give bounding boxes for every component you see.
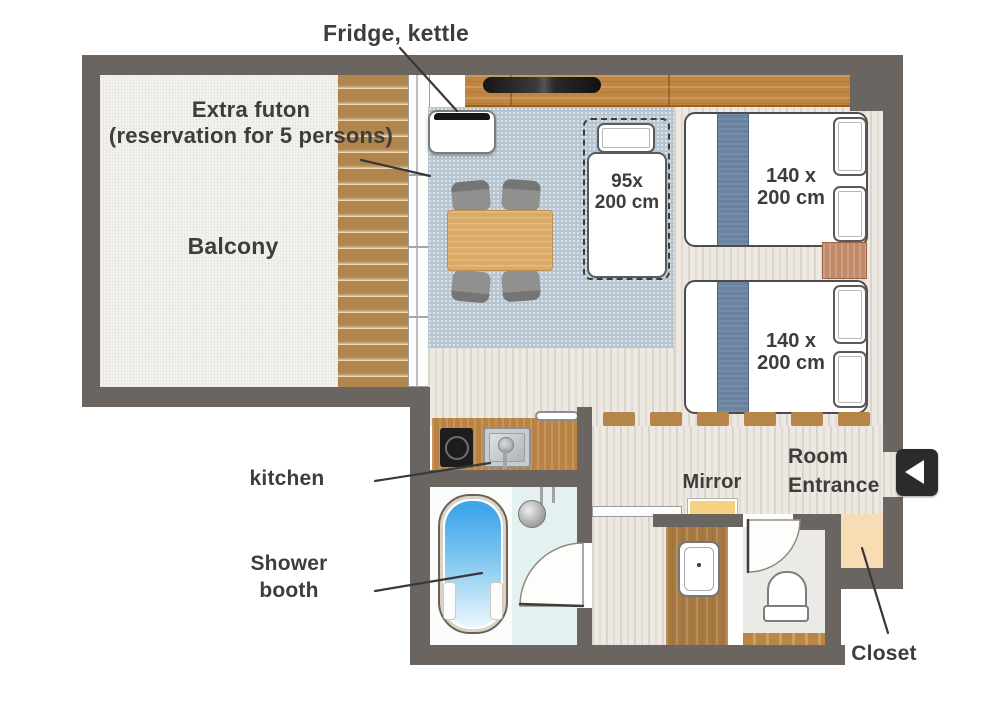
label-balcony: Balcony xyxy=(153,233,313,261)
bed-1-pillow xyxy=(833,117,867,176)
floor-slat xyxy=(603,412,635,426)
bathtub-step xyxy=(443,582,456,620)
wall-top xyxy=(82,55,903,75)
toilet-tank xyxy=(763,605,809,622)
floor-slat xyxy=(697,412,729,426)
label-shower-booth: Shower booth xyxy=(229,550,349,604)
label-room-entrance: Room Entrance xyxy=(788,442,898,500)
wall-bath-right-lower xyxy=(577,608,592,645)
chair xyxy=(501,269,541,303)
left-pointing-triangle xyxy=(905,460,924,484)
chair xyxy=(451,269,492,303)
counter-seam xyxy=(668,75,670,105)
tv xyxy=(483,77,601,93)
label-extra-futon: Extra futon (reservation for 5 persons) xyxy=(103,97,399,149)
dining-table xyxy=(447,210,553,271)
bed-2-runner xyxy=(717,282,749,412)
entrance-arrow-icon xyxy=(896,449,938,496)
window-divider xyxy=(409,246,429,248)
wall-balcony-bottom xyxy=(82,387,430,407)
chair xyxy=(501,179,541,213)
floor-slat xyxy=(650,412,682,426)
window-divider xyxy=(409,316,429,318)
chair xyxy=(451,179,492,213)
vanity-basin xyxy=(684,547,714,591)
bed-2-size-label: 140 x200 cm xyxy=(750,330,832,374)
label-fridge-kettle: Fridge, kettle xyxy=(286,20,506,48)
towel-bar xyxy=(535,411,579,421)
floor-slat xyxy=(744,412,776,426)
wall-left xyxy=(82,75,100,407)
floor-plan: 95x200 cm 140 x200 cm 140 x200 cm xyxy=(0,0,1000,708)
floor-slat xyxy=(791,412,823,426)
vanity-sink xyxy=(678,541,720,597)
balcony-window xyxy=(408,73,430,387)
label-closet: Closet xyxy=(834,641,934,666)
cooktop xyxy=(440,428,473,467)
futon-size-label: 95x200 cm xyxy=(587,171,667,213)
closet-area xyxy=(841,514,883,568)
label-mirror: Mirror xyxy=(662,470,762,494)
wall-bath-left xyxy=(410,407,430,665)
bed-1-runner xyxy=(717,114,749,245)
bed-2-pillow xyxy=(833,351,867,408)
wall-bottom xyxy=(410,645,845,665)
futon-pillow xyxy=(597,123,655,153)
bed-2-pillow xyxy=(833,285,867,344)
toilet-threshold xyxy=(743,633,825,645)
kettle xyxy=(434,113,490,120)
wall-vanity-top xyxy=(653,514,743,527)
nightstand xyxy=(822,242,867,279)
bathtub-step xyxy=(490,582,503,620)
wall-kitchen-bottom xyxy=(428,470,592,487)
floor-slat xyxy=(838,412,870,426)
vanity-drain xyxy=(697,563,701,567)
wall-corner-patch xyxy=(850,75,883,111)
wall-kitchen-right xyxy=(577,407,592,543)
fridge-kettle-unit xyxy=(428,110,496,154)
window-rail xyxy=(416,74,418,386)
burner-ring xyxy=(445,436,469,460)
faucet-stem xyxy=(503,449,507,469)
label-kitchen: kitchen xyxy=(227,466,347,491)
wall-toilet-top xyxy=(793,514,841,530)
bed-1-size-label: 140 x200 cm xyxy=(750,165,832,209)
bed-1-pillow xyxy=(833,186,867,242)
window-divider xyxy=(409,174,429,176)
wall-right-upper xyxy=(883,75,903,452)
shower-head xyxy=(518,500,546,528)
hallway-floor-lower xyxy=(592,514,668,645)
